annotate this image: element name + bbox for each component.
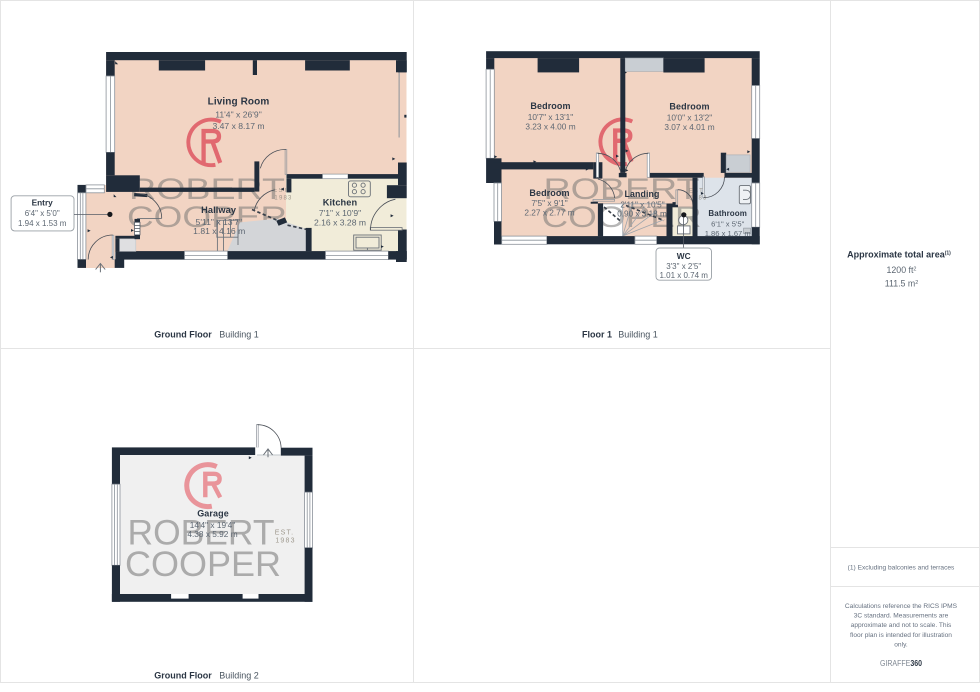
svg-text:3.07 x 4.01 m: 3.07 x 4.01 m — [664, 122, 714, 132]
svg-text:Ground Floor: Ground Floor — [154, 671, 212, 681]
svg-text:0.90 x 3.18 m: 0.90 x 3.18 m — [617, 210, 667, 219]
svg-text:WC: WC — [677, 251, 691, 261]
svg-text:Calculations reference the RIC: Calculations reference the RICS IPMS — [845, 603, 958, 610]
svg-text:4.38 x 5.92 m: 4.38 x 5.92 m — [187, 529, 237, 539]
svg-text:1.86 x 1.67 m: 1.86 x 1.67 m — [705, 229, 751, 238]
svg-text:GIRAFFE360: GIRAFFE360 — [880, 659, 922, 668]
svg-text:2.16 x 3.28 m: 2.16 x 3.28 m — [314, 218, 366, 228]
svg-text:floor plan is intended for ill: floor plan is intended for illustration — [850, 632, 952, 639]
svg-text:Building 1: Building 1 — [618, 330, 658, 340]
svg-text:Floor 1: Floor 1 — [582, 330, 612, 340]
svg-text:3.23 x 4.00 m: 3.23 x 4.00 m — [525, 122, 575, 132]
svg-text:approximate and not to scale.: approximate and not to scale. This — [851, 622, 952, 629]
svg-text:1.01 x 0.74 m: 1.01 x 0.74 m — [659, 271, 708, 280]
svg-text:10'7" x 13'1": 10'7" x 13'1" — [528, 112, 574, 122]
svg-text:11'4" x 26'9": 11'4" x 26'9" — [215, 110, 262, 120]
svg-text:1983: 1983 — [274, 196, 292, 202]
svg-text:Entry: Entry — [32, 198, 54, 208]
svg-text:1.81 x 4.16 m: 1.81 x 4.16 m — [193, 226, 245, 236]
svg-text:3.47 x 8.17 m: 3.47 x 8.17 m — [212, 121, 264, 131]
svg-text:Hallway: Hallway — [201, 205, 237, 215]
svg-text:EST.: EST. — [275, 530, 295, 537]
svg-text:6'1" x 5'5": 6'1" x 5'5" — [711, 220, 745, 229]
svg-text:3'3" x 2'5": 3'3" x 2'5" — [666, 262, 701, 271]
svg-text:1200 ft2: 1200 ft2 — [887, 265, 917, 275]
svg-text:111.5 m2: 111.5 m2 — [885, 279, 919, 289]
svg-text:COOPER: COOPER — [125, 545, 281, 584]
svg-text:1983: 1983 — [275, 538, 295, 545]
svg-text:3C standard. Measurements are: 3C standard. Measurements are — [854, 613, 949, 620]
svg-text:Bedroom: Bedroom — [529, 188, 569, 198]
svg-text:(1) Excluding balconies and te: (1) Excluding balconies and terraces — [848, 565, 955, 572]
svg-text:Bathroom: Bathroom — [708, 209, 747, 218]
svg-text:Approximate total area(1): Approximate total area(1) — [847, 250, 951, 260]
svg-text:Bedroom: Bedroom — [530, 101, 570, 111]
svg-text:Landing: Landing — [625, 189, 660, 199]
svg-text:10'0" x 13'2": 10'0" x 13'2" — [667, 113, 713, 123]
svg-text:Living Room: Living Room — [208, 97, 270, 108]
svg-text:6'4" x 5'0": 6'4" x 5'0" — [25, 209, 60, 218]
svg-text:Building 2: Building 2 — [219, 671, 259, 681]
svg-text:2'11" x 10'5": 2'11" x 10'5" — [620, 201, 664, 210]
svg-text:2.27 x 2.77 m: 2.27 x 2.77 m — [524, 207, 574, 217]
svg-text:1.94 x 1.53 m: 1.94 x 1.53 m — [18, 219, 67, 228]
svg-text:Ground Floor: Ground Floor — [154, 330, 212, 340]
svg-text:Garage: Garage — [197, 509, 229, 519]
svg-text:Building 1: Building 1 — [219, 330, 259, 340]
svg-text:Bedroom: Bedroom — [669, 102, 709, 112]
svg-text:Kitchen: Kitchen — [323, 198, 358, 208]
svg-text:only.: only. — [894, 641, 908, 648]
